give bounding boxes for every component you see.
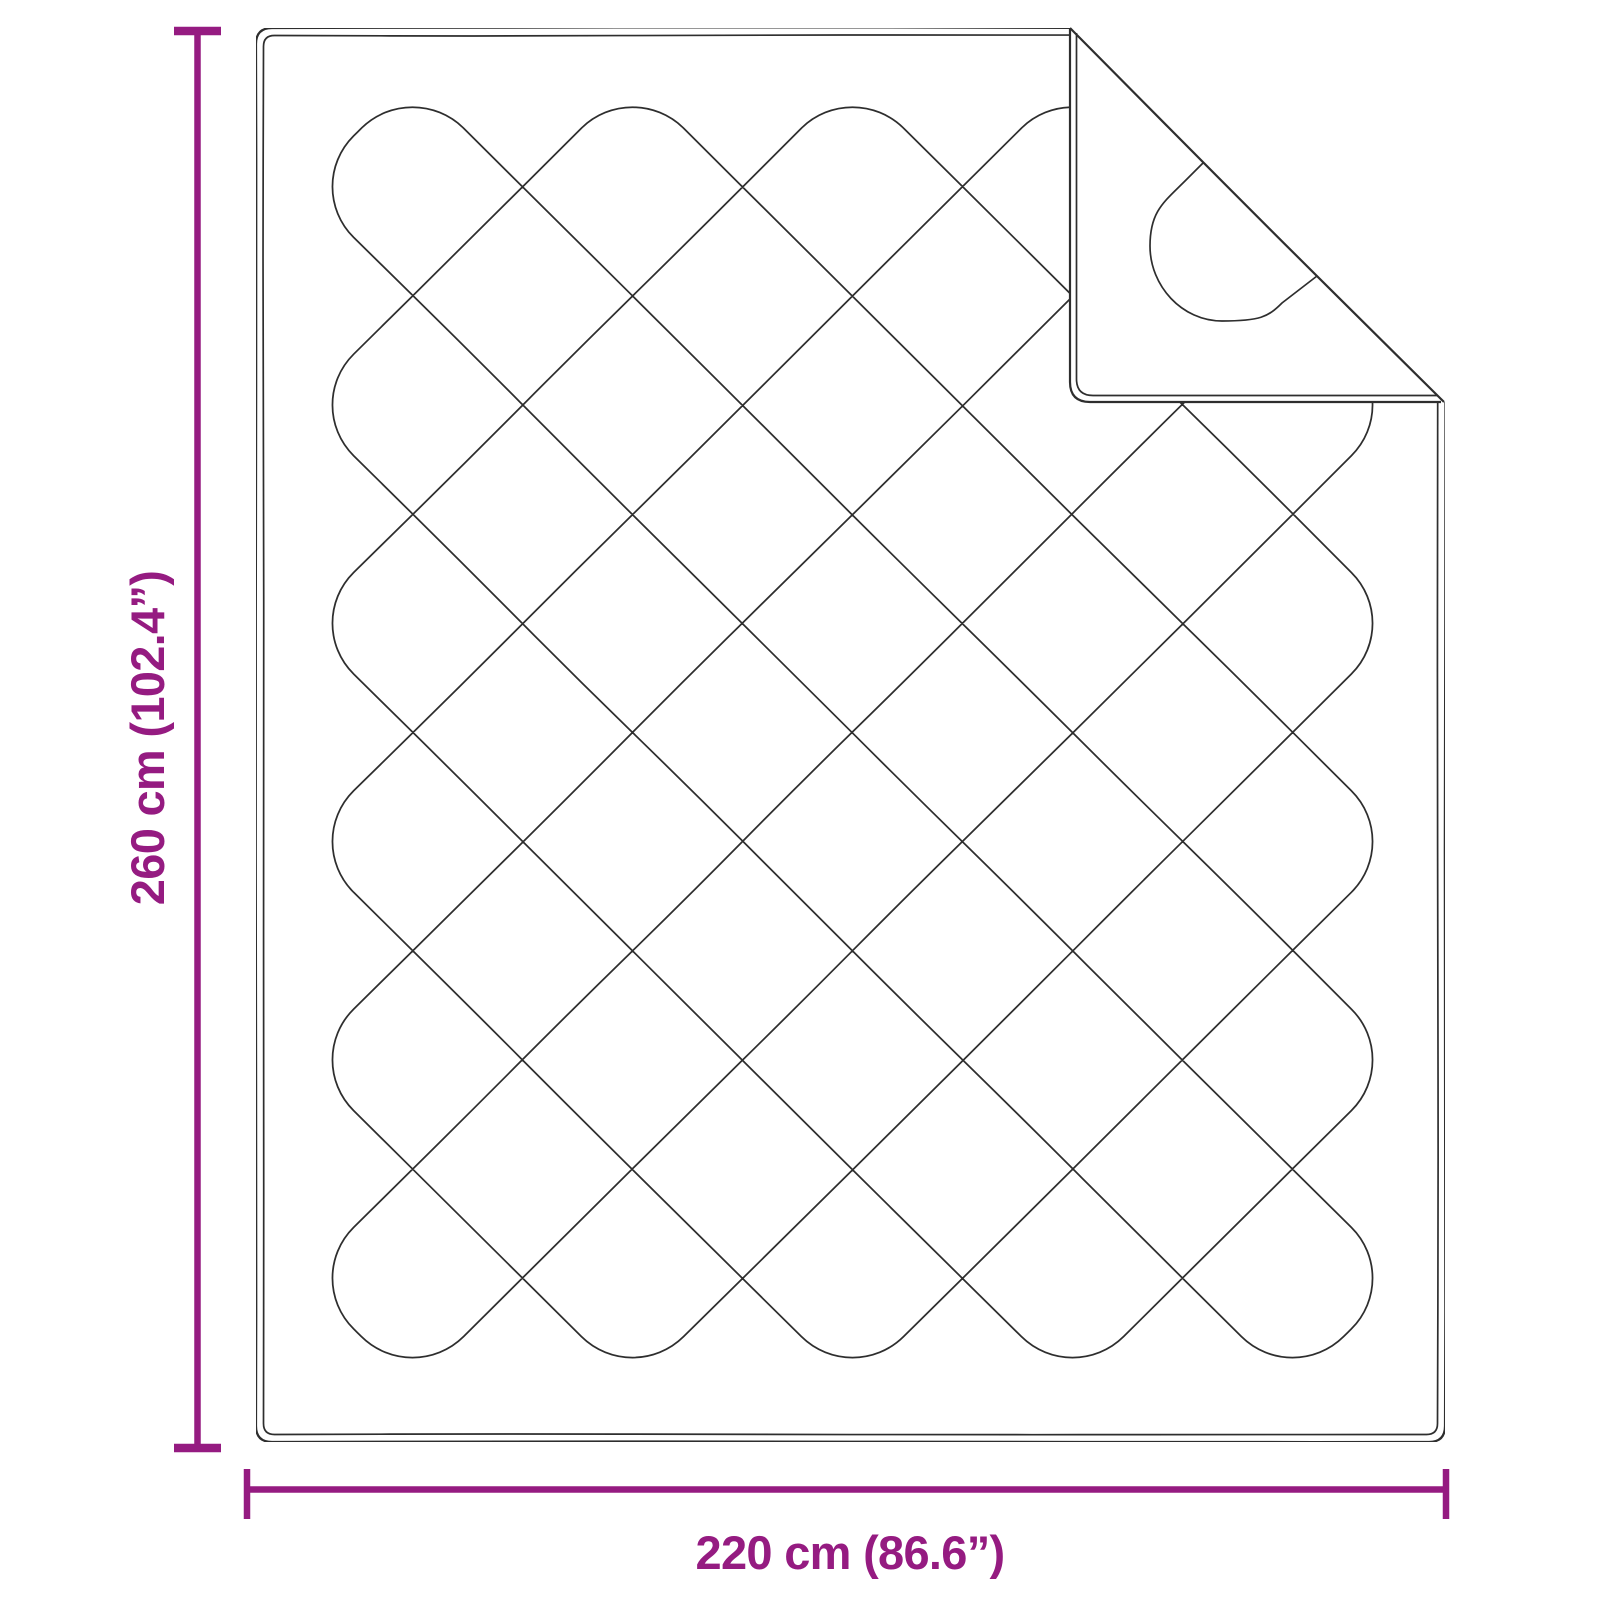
svg-text:260 cm (102.4”): 260 cm (102.4”) bbox=[121, 571, 174, 905]
svg-text:220 cm (86.6”): 220 cm (86.6”) bbox=[696, 1526, 1005, 1579]
